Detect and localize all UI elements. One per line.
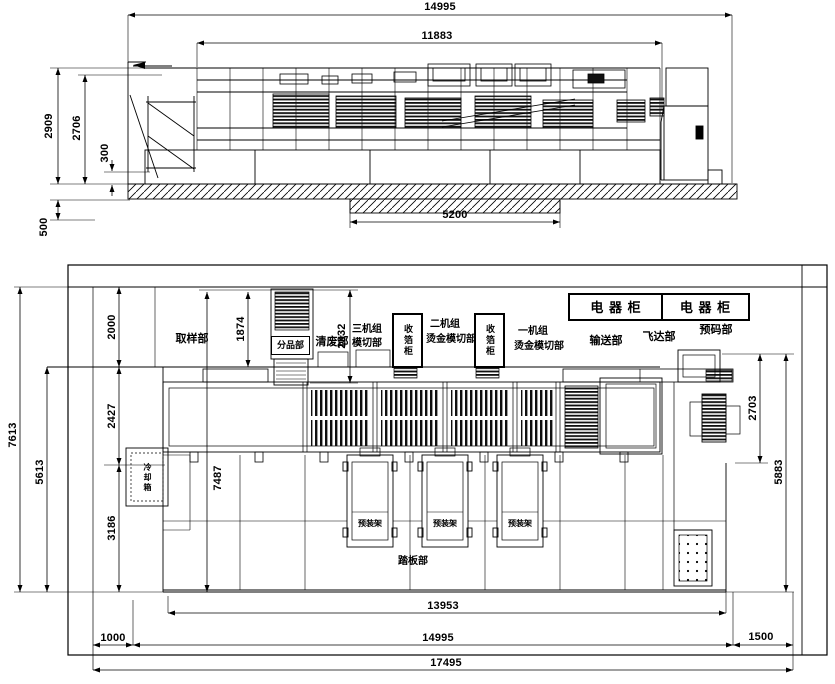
- label-foil-cabinet-1: 收箔柜: [392, 313, 423, 368]
- dim-pit-length: 5200: [425, 209, 485, 221]
- die-cart-3: [493, 448, 547, 547]
- dim-tower: 1874: [235, 312, 247, 346]
- die-cart-1: [343, 448, 397, 547]
- dim-inner-length: 13953: [415, 600, 471, 612]
- label-unit1-line1: 一机组: [511, 326, 555, 338]
- dim-pit-depth: 500: [38, 205, 50, 249]
- label-unit2-line1: 二机组: [423, 319, 467, 331]
- label-prestacker-section: 预码部: [692, 323, 740, 337]
- label-cooler-cabinet: 冷却箱: [134, 456, 160, 500]
- plan-pallet: [674, 530, 712, 586]
- label-die-cart-3: 预装架: [500, 518, 540, 529]
- dim-margin-right: 1500: [736, 631, 786, 643]
- dim-height-body: 2706: [71, 106, 83, 150]
- label-unit3-line1: 三机组: [346, 324, 388, 336]
- dim-right-upper: 2703: [747, 391, 759, 425]
- label-conveying-section: 输送部: [582, 334, 630, 348]
- label-platform-section: 踏板部: [388, 555, 438, 568]
- dim-base-height: 300: [99, 136, 111, 170]
- dim-zone-mid: 2427: [106, 399, 118, 433]
- dim-machine-width: 7487: [212, 461, 224, 495]
- side-left-feeder: [128, 62, 196, 184]
- die-cart-2: [418, 448, 472, 547]
- dim-zone-bottom: 3186: [106, 511, 118, 545]
- dim-right-full: 5883: [773, 455, 785, 489]
- label-sampling-section: 取样部: [164, 332, 220, 346]
- dim-overall-length: 14995: [410, 1, 470, 13]
- label-electrical-cabinet-1: 电 器 柜: [568, 293, 664, 321]
- dim-margin-left: 1000: [93, 632, 133, 644]
- label-unit2-line2: 烫金模切部: [421, 334, 481, 346]
- label-die-cart-2: 预装架: [425, 518, 465, 529]
- label-feeder-section: 飞达部: [635, 330, 683, 344]
- engineering-drawing-machine-layout: 14995 11883 2909 2706 300 500 5200 7613 …: [0, 0, 835, 684]
- label-die-cart-1: 预装架: [350, 518, 390, 529]
- dim-inner-left: 5613: [34, 455, 46, 489]
- dim-outer-left: 7613: [7, 418, 19, 452]
- label-unit1-line2: 烫金模切部: [509, 341, 569, 353]
- side-elevation-view: [50, 15, 737, 228]
- side-right-cabinet: [661, 68, 722, 184]
- label-electrical-cabinet-2: 电 器 柜: [661, 293, 750, 321]
- side-print-units: [273, 94, 664, 128]
- plan-die-carts: [343, 448, 547, 547]
- dim-zone-top: 2000: [106, 310, 118, 344]
- label-foil-cabinet-2: 收箔柜: [474, 313, 505, 368]
- label-sorting-section: 分品部: [271, 336, 310, 355]
- dim-machine-length: 11883: [407, 30, 467, 42]
- dim-height-total: 2909: [43, 104, 55, 148]
- dim-machine-length-plan: 14995: [408, 632, 468, 644]
- label-unit3-line2: 模切部: [346, 338, 388, 350]
- dim-total-length: 17495: [416, 657, 476, 669]
